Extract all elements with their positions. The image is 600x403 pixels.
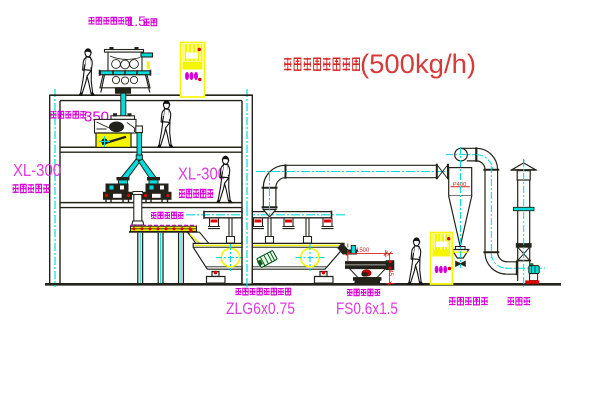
svg-text:1500: 1500 bbox=[356, 248, 370, 254]
svg-text:XL-300: XL-300 bbox=[178, 164, 226, 184]
svg-text:XL-300: XL-300 bbox=[13, 160, 61, 180]
svg-text:FS0.6x1.5: FS0.6x1.5 bbox=[336, 300, 398, 318]
svg-text:(500kg/h): (500kg/h) bbox=[360, 49, 476, 79]
svg-text:1.5: 1.5 bbox=[127, 13, 147, 29]
svg-text:ZLG6x0.75: ZLG6x0.75 bbox=[226, 300, 295, 318]
svg-text:P400: P400 bbox=[453, 182, 467, 188]
